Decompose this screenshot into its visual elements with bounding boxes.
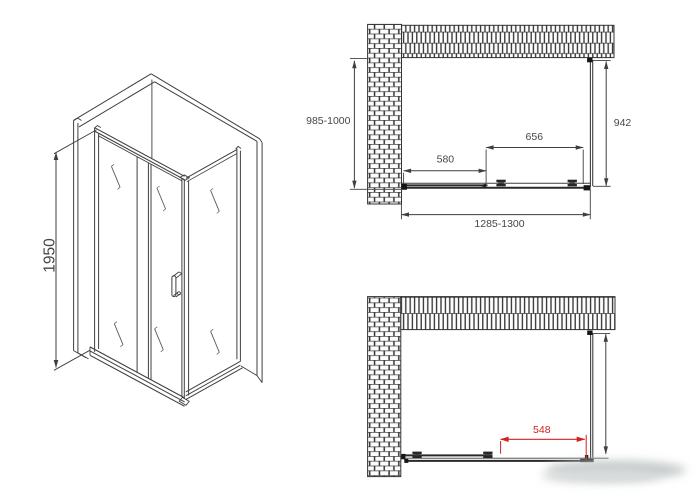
svg-text:1950: 1950: [41, 238, 58, 273]
svg-text:985-1000: 985-1000: [306, 115, 351, 127]
svg-text:942: 942: [614, 117, 632, 129]
svg-text:580: 580: [437, 154, 455, 166]
svg-text:548: 548: [533, 424, 551, 436]
svg-text:1285-1300: 1285-1300: [474, 218, 524, 230]
svg-text:656: 656: [526, 131, 544, 143]
